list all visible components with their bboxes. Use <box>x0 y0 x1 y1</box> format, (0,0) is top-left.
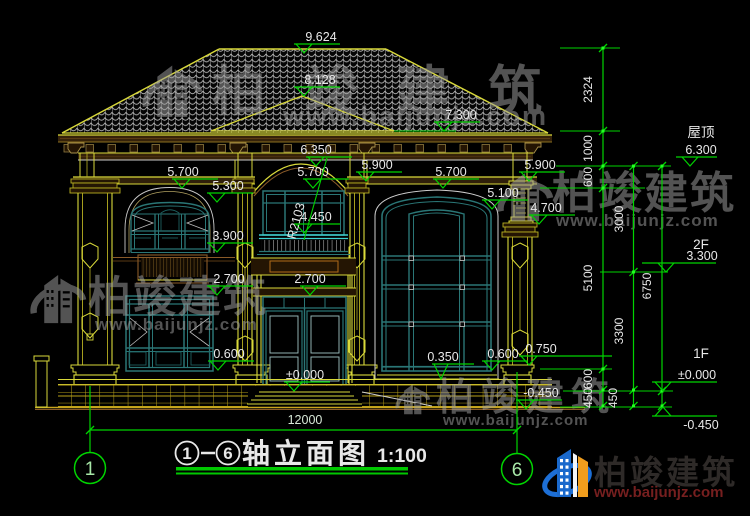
svg-text:5.300: 5.300 <box>212 179 243 193</box>
svg-text:5.700: 5.700 <box>167 165 198 179</box>
svg-text:3.900: 3.900 <box>212 229 243 243</box>
svg-text:0.350: 0.350 <box>427 350 458 364</box>
svg-text:450: 450 <box>606 388 620 408</box>
svg-text:7.300: 7.300 <box>445 108 476 122</box>
svg-text:1000: 1000 <box>581 135 595 162</box>
svg-text:1: 1 <box>85 459 96 480</box>
svg-text:屋顶: 屋顶 <box>688 125 715 140</box>
svg-text:www.baijunjz.com: www.baijunjz.com <box>94 315 258 334</box>
svg-text:3000: 3000 <box>612 205 626 232</box>
svg-text:2.700: 2.700 <box>213 272 244 286</box>
svg-text:450: 450 <box>581 388 595 408</box>
svg-text:轴立面图: 轴立面图 <box>242 437 370 469</box>
svg-text:5.900: 5.900 <box>524 158 555 172</box>
svg-text:6: 6 <box>512 460 523 481</box>
svg-text:6750: 6750 <box>640 272 654 299</box>
svg-text:2.700: 2.700 <box>294 272 325 286</box>
svg-text:±0.000: ±0.000 <box>286 368 324 382</box>
svg-text:6.300: 6.300 <box>685 143 716 157</box>
svg-text:0.750: 0.750 <box>525 342 556 356</box>
svg-text:5.900: 5.900 <box>361 158 392 172</box>
svg-text:1: 1 <box>182 444 191 463</box>
svg-text:3300: 3300 <box>612 317 626 344</box>
svg-text:5.700: 5.700 <box>435 165 466 179</box>
svg-text:600: 600 <box>581 369 595 389</box>
svg-text:0.600: 0.600 <box>487 347 518 361</box>
svg-text:www.baijunjz.com: www.baijunjz.com <box>282 101 548 131</box>
svg-text:3.300: 3.300 <box>686 249 717 263</box>
svg-text:2324: 2324 <box>581 76 595 103</box>
svg-text:-0.450: -0.450 <box>523 386 558 400</box>
svg-text:www.baijunjz.com: www.baijunjz.com <box>593 484 723 501</box>
svg-text:www.baijunjz.com: www.baijunjz.com <box>555 211 719 230</box>
svg-text:8.128: 8.128 <box>304 73 335 87</box>
svg-text:6.350: 6.350 <box>300 143 331 157</box>
svg-text:4.700: 4.700 <box>530 201 561 215</box>
svg-text:1:100: 1:100 <box>377 445 427 467</box>
svg-text:5100: 5100 <box>581 264 595 291</box>
svg-text:0.600: 0.600 <box>213 347 244 361</box>
svg-text:9.624: 9.624 <box>305 30 336 44</box>
svg-text:6: 6 <box>223 444 232 463</box>
svg-text:1F: 1F <box>693 346 709 361</box>
svg-text:±0.000: ±0.000 <box>678 368 716 382</box>
svg-text:600: 600 <box>581 167 595 187</box>
svg-text:5.100: 5.100 <box>487 186 518 200</box>
svg-text:www.baijunjz.com: www.baijunjz.com <box>442 412 588 429</box>
svg-text:12000: 12000 <box>288 413 323 427</box>
svg-text:-0.450: -0.450 <box>683 418 718 432</box>
